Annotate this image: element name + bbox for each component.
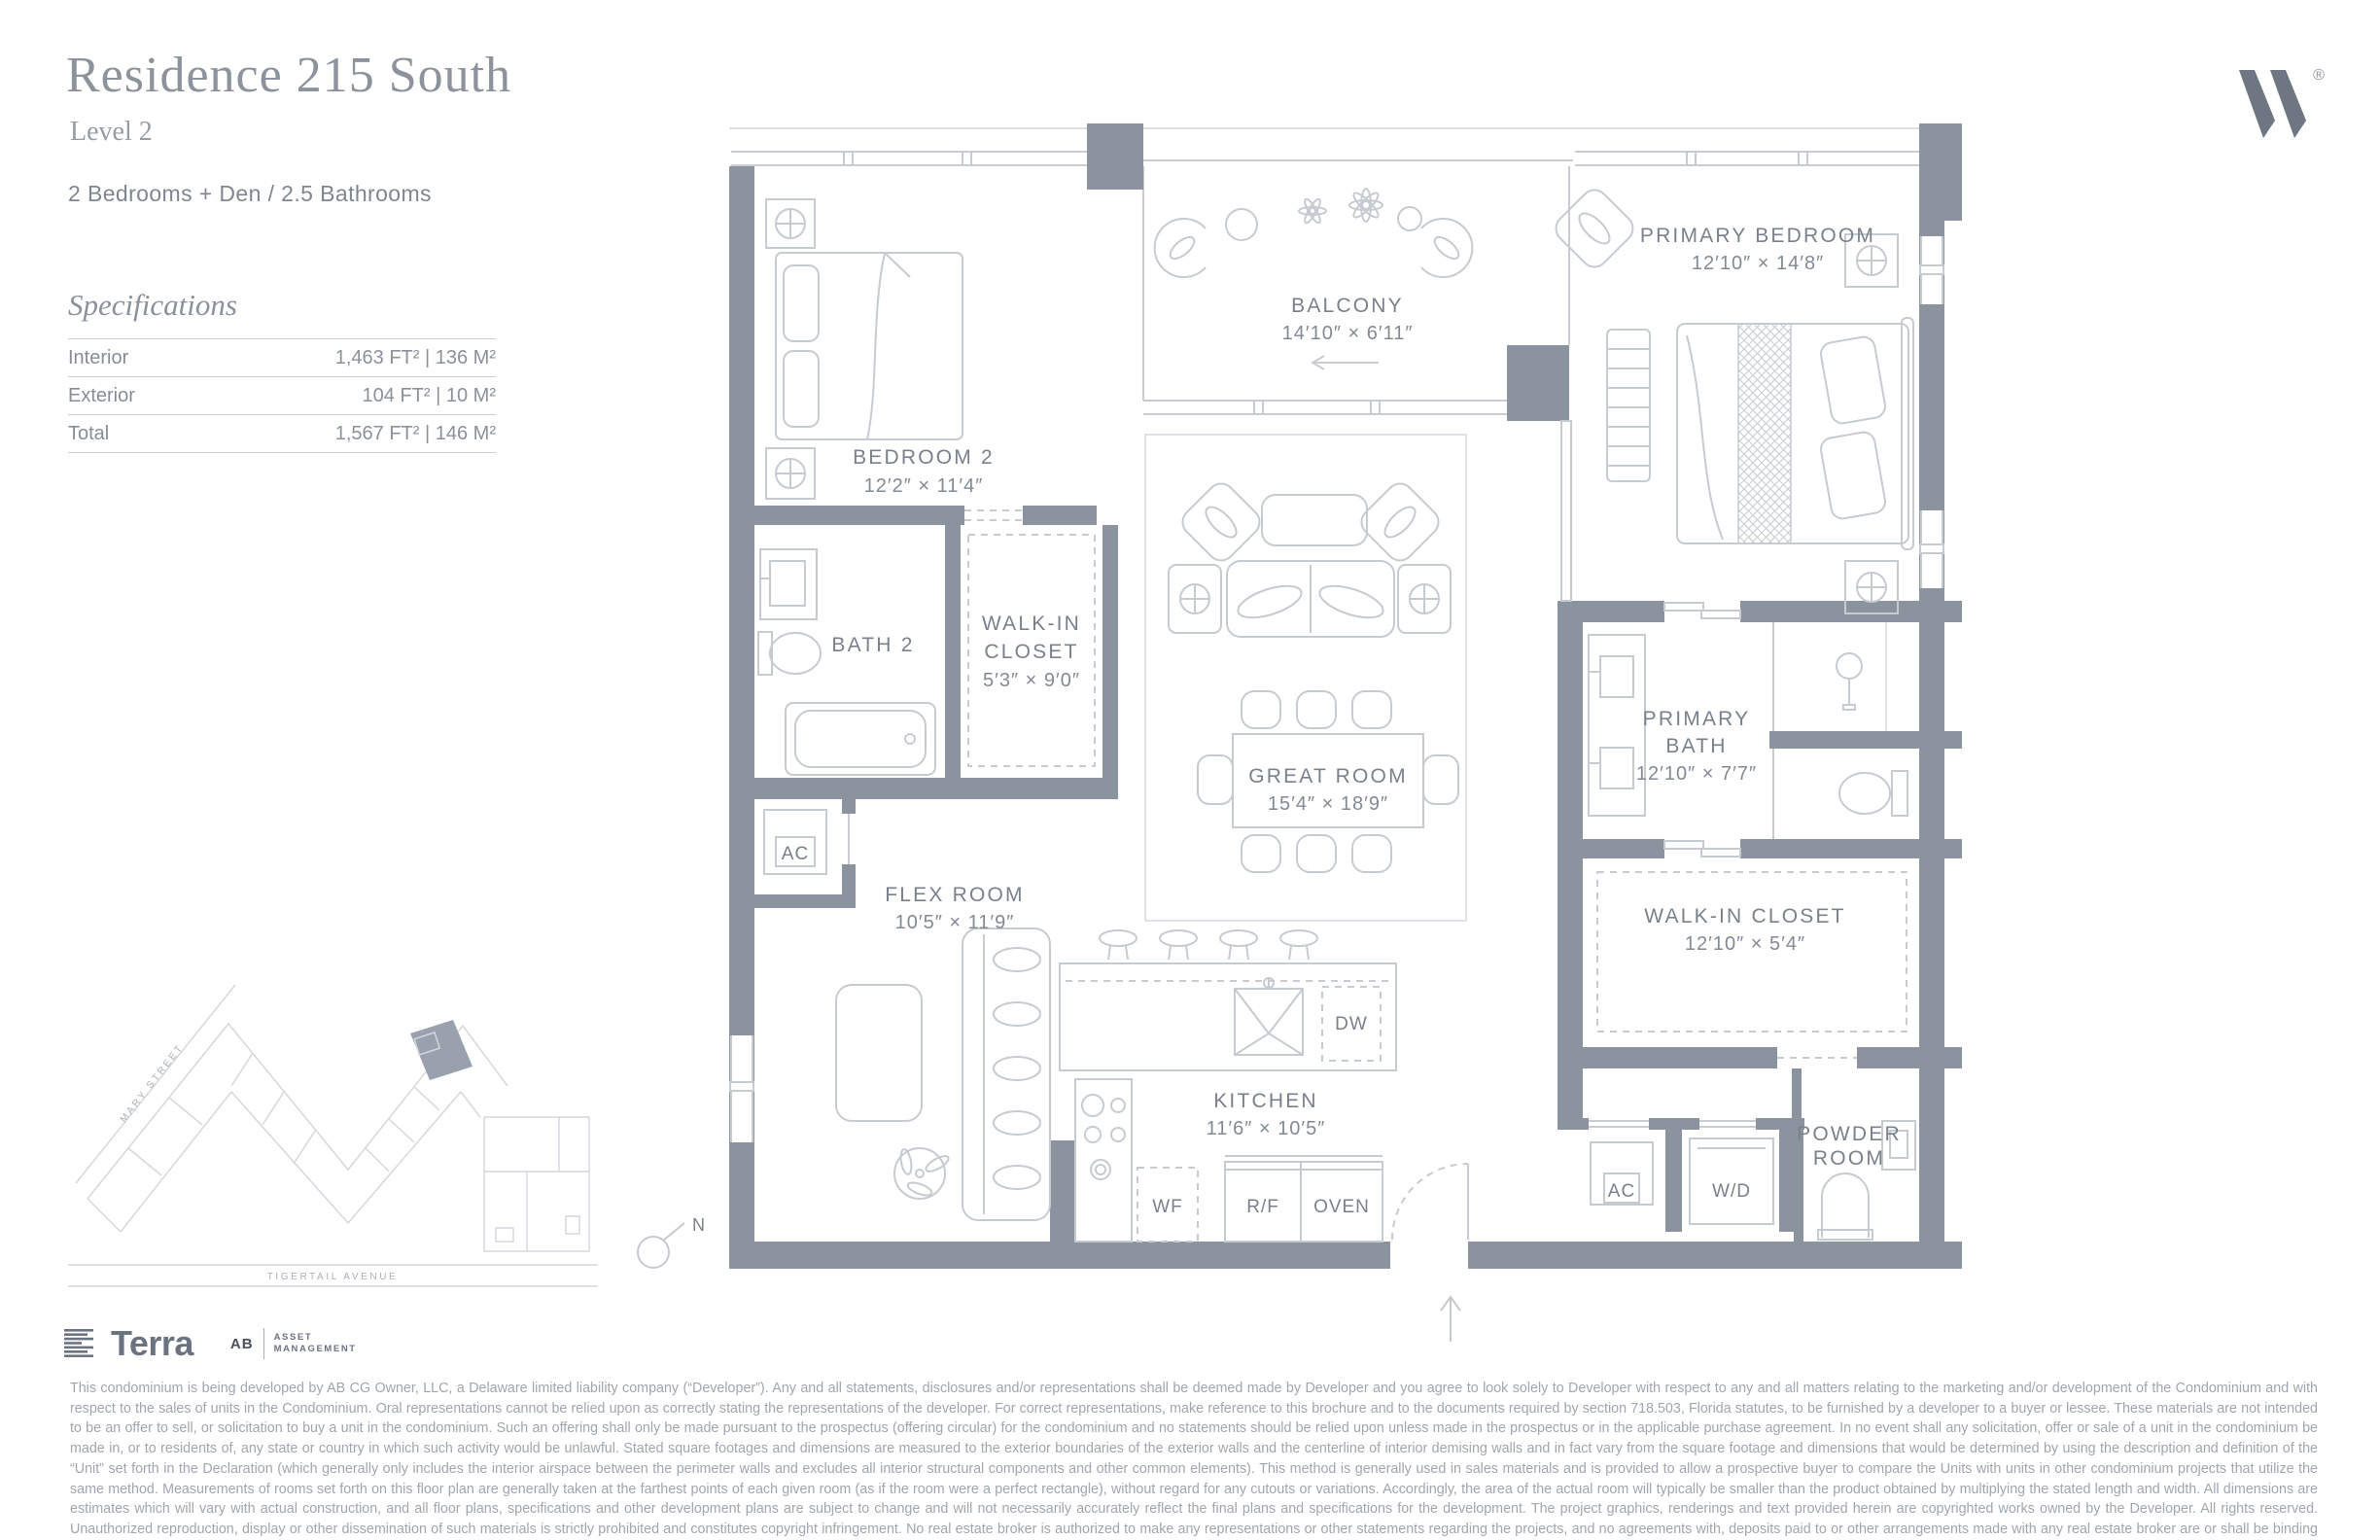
spec-row-interior: Interior 1,463 FT² | 136 M²	[68, 338, 496, 376]
terra-logo-icon	[64, 1329, 97, 1358]
toilet-icon	[1839, 771, 1907, 816]
highlighted-unit	[410, 1020, 472, 1080]
ac-closet-left	[764, 810, 826, 874]
floor-plan: BEDROOM 2 12′2″ × 11′4″ BALCONY 14′10″ ×…	[729, 122, 1962, 1274]
plant-icon	[1299, 197, 1326, 225]
north-letter: N	[692, 1215, 705, 1235]
window-band-balcony	[1143, 401, 1507, 414]
developer-logos: Terra AB ASSET MANAGEMENT	[64, 1326, 357, 1361]
spec-value: 1,463 FT² | 136 M²	[335, 347, 496, 369]
oven-label: OVEN	[1313, 1197, 1370, 1217]
balcony-dims: 14′10″ × 6′11″	[1282, 323, 1414, 344]
primary-bedroom-furniture	[1551, 185, 1913, 613]
primary-bath-label-1: PRIMARY	[1643, 708, 1751, 730]
spec-row-exterior: Exterior 104 FT² | 10 M²	[68, 376, 496, 414]
asset-management-wordmark: ASSET MANAGEMENT	[274, 1332, 357, 1355]
bar-stools-icon	[1100, 930, 1317, 960]
spec-value: 1,567 FT² | 146 M²	[335, 423, 496, 445]
primary-bath-fixtures	[1589, 622, 1907, 839]
great-room-dims: 15′4″ × 18′9″	[1268, 793, 1388, 815]
specifications-panel: Specifications Interior 1,463 FT² | 136 …	[68, 288, 496, 453]
flex-room-label: FLEX ROOM	[885, 884, 1024, 906]
spec-value: 104 FT² | 10 M²	[363, 385, 496, 407]
legal-disclaimer: This condominium is being developed by A…	[70, 1379, 2318, 1540]
kitchen-dims: 11′6″ × 10′5″	[1207, 1118, 1326, 1139]
great-room-label: GREAT ROOM	[1248, 765, 1408, 787]
powder-room-label-2: ROOM	[1813, 1147, 1885, 1170]
primary-bath-label-2: BATH	[1665, 735, 1727, 757]
window-band-primary	[1575, 152, 1919, 165]
dw-label: DW	[1335, 1014, 1368, 1034]
primary-bedroom-dims: 12′10″ × 14′8″	[1692, 253, 1824, 274]
flex-room-dims: 10′5″ × 11′9″	[895, 912, 1015, 933]
closet2-dims: 12′10″ × 5′4″	[1685, 933, 1805, 955]
spec-label: Exterior	[68, 385, 135, 407]
level-subtitle: Level 2	[70, 117, 153, 148]
ab-asset-management-logo: AB ASSET MANAGEMENT	[230, 1328, 357, 1359]
ceiling-fan-icon	[894, 1148, 951, 1199]
site-map: MARY STREET TIGERTAIL AVENUE	[68, 977, 598, 1298]
window-band-right-lower	[1920, 510, 1943, 588]
specifications-heading: Specifications	[68, 288, 496, 323]
spec-label: Interior	[68, 347, 128, 369]
ab-wordmark: AB	[230, 1336, 254, 1352]
bedroom2-label: BEDROOM 2	[853, 446, 995, 469]
w-brand-logo-icon: ®	[2231, 64, 2328, 144]
closet2-label: WALK-IN CLOSET	[1644, 905, 1845, 927]
powder-toilet-icon	[1818, 1173, 1872, 1240]
closet1-label-1: WALK-IN	[982, 612, 1081, 635]
closet1-dims: 5′3″ × 9′0″	[983, 670, 1080, 691]
powder-room-label-1: POWDER	[1797, 1123, 1902, 1145]
kitchen-label: KITCHEN	[1213, 1090, 1318, 1112]
logo-divider	[263, 1328, 264, 1359]
thin-wall	[1561, 421, 1571, 601]
flower-icon	[1349, 189, 1382, 222]
flex-room-furniture	[836, 928, 1050, 1220]
entry-door	[1392, 1164, 1468, 1240]
page-title: Residence 215 South	[66, 47, 511, 104]
rf-label: R/F	[1246, 1197, 1279, 1217]
cooktop-icon	[1082, 1095, 1125, 1179]
north-indicator-icon: N	[630, 1213, 719, 1276]
window-band-flex	[730, 1035, 753, 1142]
ac1-label: AC	[782, 844, 809, 864]
street-label-mary: MARY STREET	[119, 1042, 187, 1125]
site-building-outline	[87, 1024, 589, 1251]
window-band-bedroom2	[731, 152, 1087, 165]
wf-label: WF	[1152, 1197, 1183, 1217]
ac2-label: AC	[1608, 1181, 1635, 1202]
bedroom2-dims: 12′2″ × 11′4″	[864, 475, 984, 497]
wd-label: W/D	[1712, 1181, 1751, 1202]
bath2-fixtures	[758, 549, 935, 775]
sink-icon	[1235, 978, 1303, 1055]
primary-bath-dims: 12′10″ × 7′7″	[1636, 763, 1757, 785]
kitchen-fixtures	[1060, 930, 1396, 1242]
entry-arrow-icon	[1421, 1285, 1480, 1347]
program-summary: 2 Bedrooms + Den / 2.5 Bathrooms	[68, 181, 432, 207]
shower-icon	[1837, 622, 1886, 731]
balcony-label: BALCONY	[1291, 295, 1404, 317]
primary-bedroom-label: PRIMARY BEDROOM	[1640, 225, 1875, 247]
bath2-label: BATH 2	[831, 634, 914, 656]
closet1-label-2: CLOSET	[984, 641, 1078, 663]
registered-mark: ®	[2313, 67, 2325, 84]
spec-row-total: Total 1,567 FT² | 146 M²	[68, 414, 496, 453]
window-band-right-upper	[1920, 236, 1943, 304]
street-label-tigertail: TIGERTAIL AVENUE	[267, 1272, 399, 1282]
brochure-page: Residence 215 South Level 2 2 Bedrooms +…	[0, 0, 2380, 1540]
spec-label: Total	[68, 423, 109, 445]
great-room-furniture	[1145, 435, 1466, 921]
terra-wordmark: Terra	[111, 1329, 193, 1358]
